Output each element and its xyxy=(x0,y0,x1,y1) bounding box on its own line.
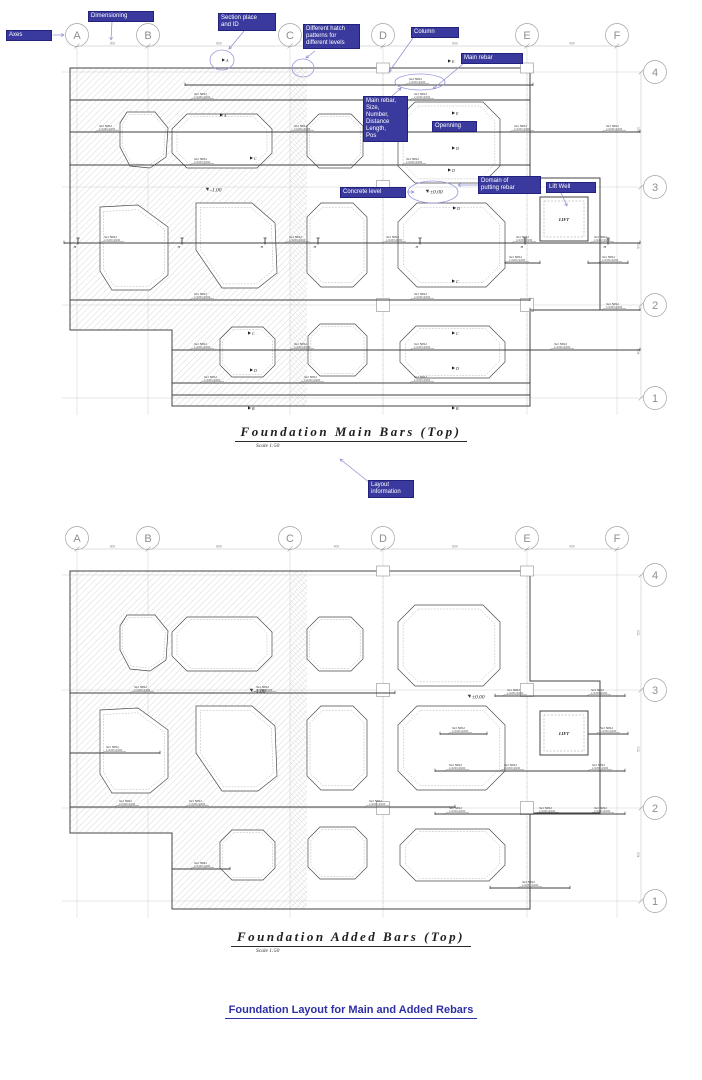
svg-text:L=1150 @200: L=1150 @200 xyxy=(507,691,524,695)
svg-text:D: D xyxy=(455,146,459,151)
svg-text:L=1150 @200: L=1150 @200 xyxy=(504,766,521,770)
svg-text:L=1150 @200: L=1150 @200 xyxy=(119,802,136,806)
svg-text:H: H xyxy=(260,245,264,249)
svg-text:L=1150 @200: L=1150 @200 xyxy=(104,238,121,242)
svg-text:L=1150 @200: L=1150 @200 xyxy=(449,766,466,770)
svg-text:400: 400 xyxy=(569,545,575,549)
svg-text:L=1150 @200: L=1150 @200 xyxy=(194,295,211,299)
svg-text:B: B xyxy=(252,406,255,411)
svg-text:L=1150 @200: L=1150 @200 xyxy=(554,345,571,349)
svg-text:500: 500 xyxy=(637,630,641,636)
svg-text:600: 600 xyxy=(452,42,458,46)
svg-text:L=1150 @200: L=1150 @200 xyxy=(99,127,116,131)
svg-text:H: H xyxy=(603,245,607,249)
plan-main-bars: ABCDEF3006004006004004321500500400№1 5Ø1… xyxy=(62,24,667,416)
svg-text:A: A xyxy=(223,113,227,118)
svg-text:L=1150 @200: L=1150 @200 xyxy=(414,378,431,382)
drawing2-title: Foundation Added Bars (Top) xyxy=(231,929,471,947)
svg-text:L=1150 @200: L=1150 @200 xyxy=(406,160,423,164)
svg-text:L=1150 @200: L=1150 @200 xyxy=(134,688,151,692)
drawing1-scale: Scale 1:50 xyxy=(256,443,446,449)
svg-text:H: H xyxy=(313,245,317,249)
svg-text:L=1150 @200: L=1150 @200 xyxy=(414,295,431,299)
svg-text:L=1150 @200: L=1150 @200 xyxy=(414,345,431,349)
svg-text:-1.00: -1.00 xyxy=(254,689,266,695)
svg-text:D: D xyxy=(455,366,459,371)
svg-text:400: 400 xyxy=(637,852,641,858)
svg-text:L=1150 @200: L=1150 @200 xyxy=(194,345,211,349)
svg-text:L=1150 @200: L=1150 @200 xyxy=(449,809,466,813)
svg-text:C: C xyxy=(254,156,257,161)
drawing1-title: Foundation Main Bars (Top) xyxy=(235,424,468,442)
svg-text:L=1150 @200: L=1150 @200 xyxy=(539,809,556,813)
svg-text:C: C xyxy=(252,331,255,336)
svg-text:L=1150 @200: L=1150 @200 xyxy=(602,258,619,262)
svg-text:A: A xyxy=(73,533,81,545)
svg-text:300: 300 xyxy=(110,42,116,46)
svg-text:L=1150 @200: L=1150 @200 xyxy=(304,378,321,382)
svg-text:L=1150 @200: L=1150 @200 xyxy=(509,258,526,262)
svg-text:L=1150 @200: L=1150 @200 xyxy=(606,127,623,131)
svg-text:L=1150 @200: L=1150 @200 xyxy=(189,802,206,806)
svg-text:L=1150 @200: L=1150 @200 xyxy=(594,809,611,813)
svg-text:L=1150 @200: L=1150 @200 xyxy=(386,238,403,242)
svg-text:C: C xyxy=(286,533,294,545)
svg-text:E: E xyxy=(523,30,530,42)
svg-text:L=1150 @200: L=1150 @200 xyxy=(204,378,221,382)
sheet: ABCDEF3006004006004004321500500400№1 5Ø1… xyxy=(0,0,702,1080)
svg-text:L=1150 @200: L=1150 @200 xyxy=(369,802,386,806)
svg-text:D: D xyxy=(456,206,460,211)
svg-text:600: 600 xyxy=(216,545,222,549)
svg-text:1: 1 xyxy=(652,896,658,908)
svg-text:D: D xyxy=(451,168,455,173)
svg-text:H: H xyxy=(520,245,524,249)
svg-text:L=1150 @200: L=1150 @200 xyxy=(294,127,311,131)
svg-text:C: C xyxy=(286,30,294,42)
svg-text:H: H xyxy=(177,245,181,249)
svg-text:B: B xyxy=(144,533,151,545)
svg-text:300: 300 xyxy=(110,545,116,549)
svg-text:L=1150 @200: L=1150 @200 xyxy=(194,95,211,99)
svg-text:B: B xyxy=(144,30,151,42)
svg-text:A: A xyxy=(73,30,81,42)
svg-text:L=1150 @200: L=1150 @200 xyxy=(600,729,617,733)
svg-text:L=1150 @200: L=1150 @200 xyxy=(194,160,211,164)
plan-added-bars: ABCDEF3006004006004004321500500400№1 5Ø1… xyxy=(62,527,667,919)
svg-text:L=1150 @200: L=1150 @200 xyxy=(516,238,533,242)
svg-text:±0.00: ±0.00 xyxy=(472,695,485,701)
svg-text:E: E xyxy=(451,59,455,64)
svg-text:L=1150 @200: L=1150 @200 xyxy=(414,95,431,99)
svg-text:F: F xyxy=(614,30,621,42)
svg-text:400: 400 xyxy=(334,545,340,549)
svg-text:2: 2 xyxy=(652,300,658,312)
svg-text:H: H xyxy=(73,245,77,249)
svg-text:L=1150 @200: L=1150 @200 xyxy=(294,345,311,349)
drawing2-scale: Scale 1:50 xyxy=(256,948,446,954)
svg-text:L=1150 @200: L=1150 @200 xyxy=(514,127,531,131)
svg-text:3: 3 xyxy=(652,685,658,697)
svg-text:3: 3 xyxy=(652,182,658,194)
svg-text:-1.00: -1.00 xyxy=(210,188,222,194)
svg-text:E: E xyxy=(455,111,459,116)
svg-text:L=1150 @200: L=1150 @200 xyxy=(522,883,539,887)
sheet-footer-title: Foundation Layout for Main and Added Reb… xyxy=(225,1004,478,1019)
svg-text:H: H xyxy=(415,245,419,249)
svg-text:LIFT: LIFT xyxy=(558,731,570,736)
svg-text:L=1150 @200: L=1150 @200 xyxy=(452,729,469,733)
svg-text:L=1150 @200: L=1150 @200 xyxy=(106,748,123,752)
svg-text:D: D xyxy=(379,533,387,545)
drawing-title-block-added: Foundation Added Bars (Top) Scale 1:50 xyxy=(0,928,702,954)
plan-linework: ABCDEF3006004006004004321500500400№1 5Ø1… xyxy=(0,0,702,1080)
svg-text:LIFT: LIFT xyxy=(558,217,570,222)
svg-text:±0.00: ±0.00 xyxy=(430,190,443,196)
svg-text:L=1150 @200: L=1150 @200 xyxy=(606,305,623,309)
svg-text:1: 1 xyxy=(652,393,658,405)
svg-text:L=1150 @200: L=1150 @200 xyxy=(409,80,426,84)
svg-text:2: 2 xyxy=(652,803,658,815)
svg-text:600: 600 xyxy=(216,42,222,46)
svg-text:B: B xyxy=(456,406,459,411)
drawing-title-block-main: Foundation Main Bars (Top) Scale 1:50 xyxy=(0,423,702,449)
svg-text:C: C xyxy=(456,331,459,336)
svg-text:F: F xyxy=(614,533,621,545)
svg-text:D: D xyxy=(253,368,257,373)
svg-text:E: E xyxy=(523,533,530,545)
svg-text:600: 600 xyxy=(452,545,458,549)
svg-text:400: 400 xyxy=(334,42,340,46)
svg-text:L=1150 @200: L=1150 @200 xyxy=(194,864,211,868)
svg-text:L=1150 @200: L=1150 @200 xyxy=(591,691,608,695)
svg-text:A: A xyxy=(225,58,229,63)
svg-text:L=1150 @200: L=1150 @200 xyxy=(289,238,306,242)
svg-text:L=1150 @200: L=1150 @200 xyxy=(592,766,609,770)
svg-text:C: C xyxy=(456,279,459,284)
svg-text:400: 400 xyxy=(569,42,575,46)
svg-text:500: 500 xyxy=(637,746,641,752)
sheet-footer: Foundation Layout for Main and Added Reb… xyxy=(0,1000,702,1019)
svg-text:D: D xyxy=(379,30,387,42)
svg-text:4: 4 xyxy=(652,570,658,582)
svg-text:4: 4 xyxy=(652,67,658,79)
